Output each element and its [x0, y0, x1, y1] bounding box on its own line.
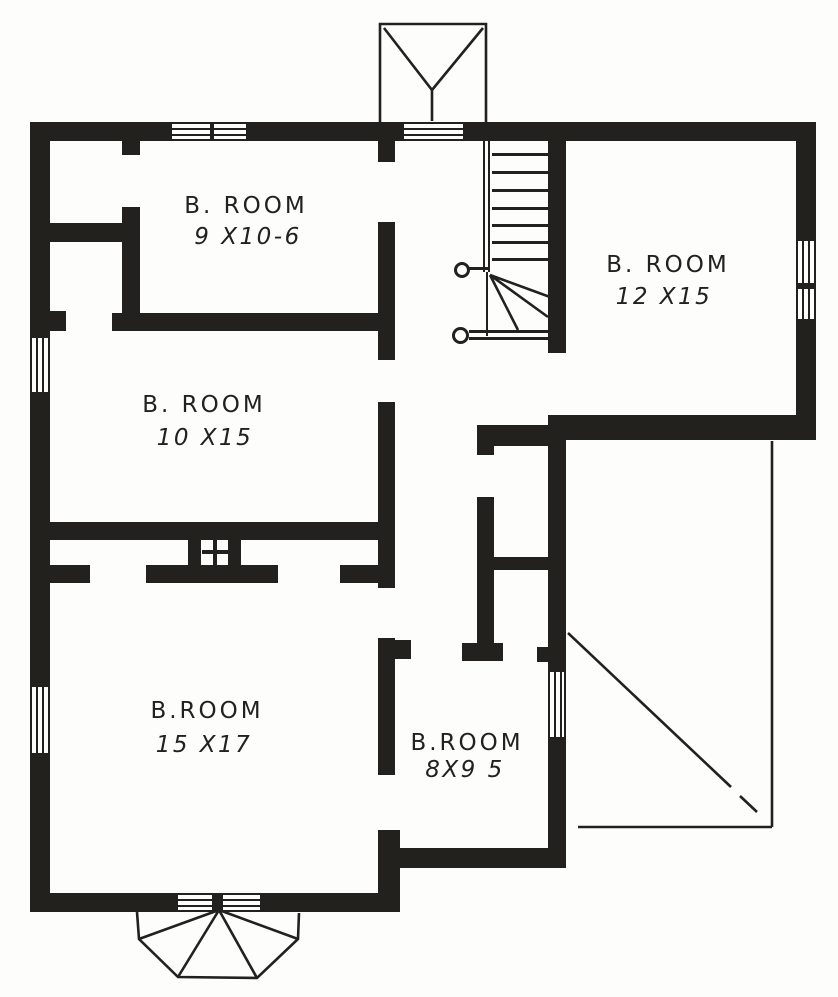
room-label-top-left-name: B. ROOM	[184, 193, 307, 219]
room-label-top-right-size: 12 X15	[616, 284, 713, 310]
room-label-bottom-left-size: 15 X17	[156, 732, 253, 758]
roof-diagonal	[568, 633, 757, 812]
floor-plan: B. ROOM 9 X10-6 B. ROOM 12 X15 B. ROOM 1…	[0, 0, 838, 997]
thin-line-overlay	[0, 0, 838, 997]
room-label-top-left-size: 9 X10-6	[194, 224, 301, 250]
room-label-mid-left-size: 10 X15	[157, 425, 254, 451]
room-label-top-right-name: B. ROOM	[606, 252, 729, 278]
stair-winder-treads	[490, 275, 550, 330]
room-label-bottom-left-name: B.ROOM	[150, 698, 263, 724]
room-label-bottom-mid-size: 8X9 5	[425, 757, 504, 783]
room-label-mid-left-name: B. ROOM	[142, 392, 265, 418]
room-label-bottom-mid-name: B.ROOM	[410, 730, 523, 756]
roof-gable	[380, 24, 486, 122]
open-roof-area	[568, 441, 772, 827]
bay-window	[137, 910, 299, 978]
